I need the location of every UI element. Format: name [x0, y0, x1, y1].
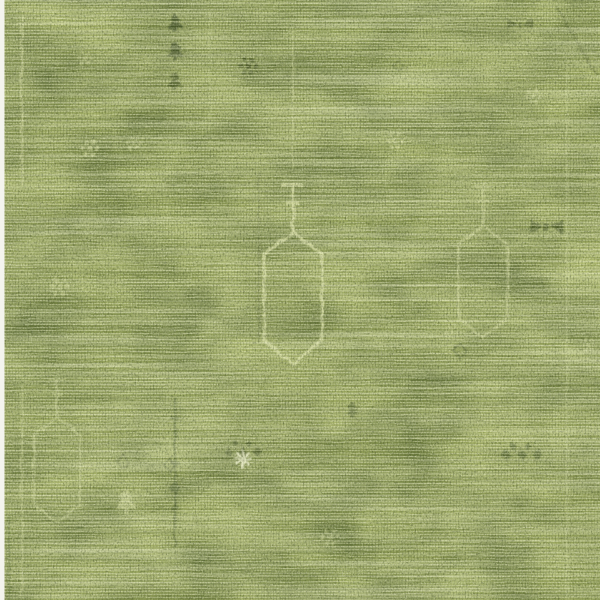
rug-photo [0, 0, 600, 600]
rug-grain-light [0, 0, 600, 600]
photo-left-margin [0, 0, 5, 600]
rug-texture-svg [0, 0, 600, 600]
